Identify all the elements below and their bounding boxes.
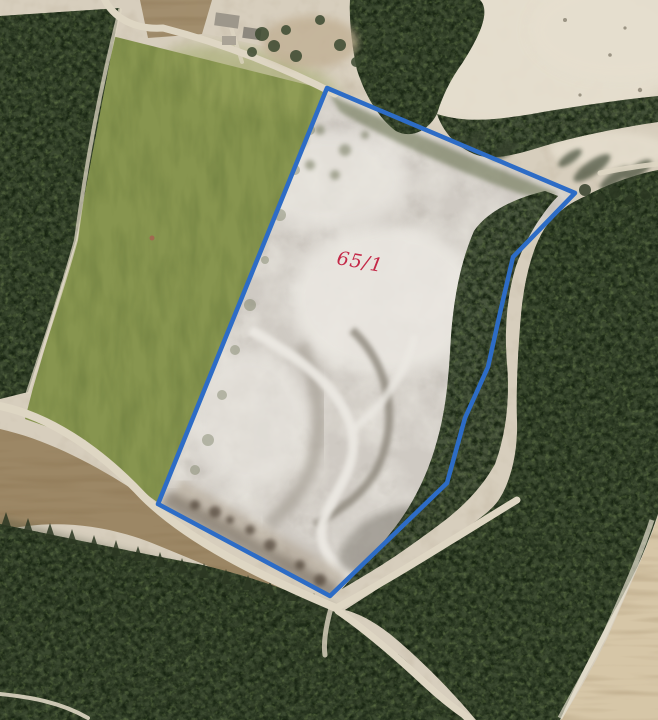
scrub-dot [230,345,240,355]
tree-dot [640,190,650,200]
debris-dot [563,18,567,22]
scrub-dot [217,390,227,400]
scrub-dot [261,256,269,264]
tree-dot [351,57,361,67]
rubble-dot [226,516,234,524]
scrub-dot [330,170,340,180]
rubble-dot [314,574,326,586]
scrub-dot [244,299,256,311]
rubble-dot [295,560,305,570]
tree-dot [609,186,621,198]
tree-dot [290,50,302,62]
aerial-photo: 65/1 [0,0,658,720]
scrub-dot [305,160,315,170]
farm-building [222,36,236,45]
tree-dot [625,195,635,205]
tree-dot [255,27,269,41]
tree-dot [595,193,605,203]
scrub-dot [339,144,351,156]
tree-dot [268,40,280,52]
tree-dot [401,56,409,64]
field-object-dot [150,236,155,241]
tree-dot [315,15,325,25]
scrub-dot [361,131,369,139]
scrub-dot [202,434,214,446]
tree-dot [385,35,395,45]
debris-dot [638,88,642,92]
rubble-dot [209,506,221,518]
tree-dot [579,184,591,196]
tree-dot [334,39,346,51]
tree-dot [281,25,291,35]
tree-dot [247,47,257,57]
debris-dot [578,93,581,96]
aerial-photo-viewport: 65/1 [0,0,658,720]
debris-dot [623,26,626,29]
scrub-dot [190,465,200,475]
rubble-dot [264,539,276,551]
scrub-dot [315,125,325,135]
rubble-dot [245,525,255,535]
rubble-dot [190,500,200,510]
tree-dot [368,26,376,34]
debris-dot [608,53,612,57]
